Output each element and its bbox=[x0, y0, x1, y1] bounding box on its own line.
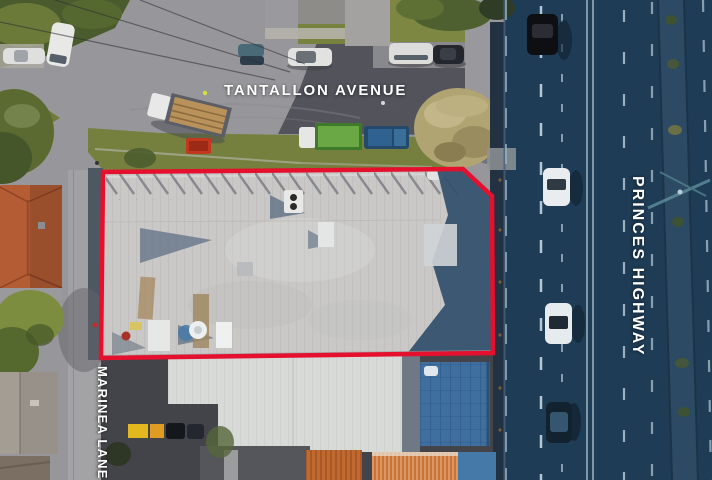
princes-highway bbox=[479, 0, 712, 480]
van-windows bbox=[394, 55, 428, 60]
orange-corrugated-roof bbox=[306, 450, 362, 480]
rust-patch bbox=[138, 277, 156, 320]
worker-hivis bbox=[203, 91, 207, 95]
car-shadow bbox=[556, 20, 572, 60]
gray-roof-house bbox=[0, 372, 58, 454]
shrub bbox=[206, 426, 234, 458]
yellow-item bbox=[130, 322, 142, 330]
dumpster-interior bbox=[189, 141, 208, 151]
white-van bbox=[389, 43, 433, 64]
street-label-marinea-lane: MARINEA LANE bbox=[95, 366, 110, 480]
white-panels-sunlit bbox=[424, 224, 457, 266]
rust-corrugated-roof bbox=[372, 452, 460, 480]
lower-buildings bbox=[101, 353, 496, 480]
median-bush bbox=[675, 358, 689, 368]
car-windows bbox=[14, 50, 28, 62]
rust-patch bbox=[193, 294, 209, 348]
green-flatbed-truck bbox=[299, 123, 362, 150]
blue-truck bbox=[364, 126, 409, 149]
blue-roof-small bbox=[458, 452, 496, 480]
bottom-house bbox=[0, 456, 50, 480]
fence-shadow-hatch bbox=[106, 170, 460, 200]
red-drum bbox=[122, 332, 131, 341]
white-panel bbox=[216, 322, 232, 348]
red-object bbox=[93, 323, 98, 328]
dark-car bbox=[166, 423, 185, 439]
orange-bin bbox=[150, 424, 164, 438]
utility-pole bbox=[95, 161, 99, 165]
car-roof bbox=[532, 24, 553, 38]
car-roof bbox=[440, 48, 456, 60]
car-shadow bbox=[569, 170, 583, 206]
driveway bbox=[345, 0, 392, 46]
footpath bbox=[265, 28, 345, 39]
terracotta-roof-house bbox=[0, 185, 62, 290]
car-roof bbox=[550, 412, 568, 432]
subject-property bbox=[101, 169, 493, 358]
median-bush bbox=[668, 125, 682, 135]
skylight bbox=[237, 262, 253, 276]
blue-roof-building bbox=[420, 362, 490, 446]
street-label-princes-highway: PRINCES HIGHWAY bbox=[628, 176, 646, 357]
roof-corner bbox=[298, 0, 345, 26]
yellow-skip bbox=[128, 424, 148, 438]
chimney bbox=[38, 222, 45, 229]
car-shadow bbox=[571, 305, 585, 343]
roof-vent bbox=[424, 366, 438, 376]
tree-highlight bbox=[4, 104, 40, 128]
roof-mottle bbox=[308, 300, 412, 340]
ac-unit bbox=[284, 190, 303, 213]
median-bush bbox=[672, 217, 684, 227]
median-bush bbox=[665, 15, 677, 25]
driveway-crossover bbox=[487, 148, 516, 170]
skylight bbox=[30, 400, 39, 406]
shrub bbox=[124, 148, 156, 168]
dish-center bbox=[194, 326, 202, 334]
white-panel bbox=[148, 320, 170, 351]
light-pole bbox=[381, 101, 385, 105]
car-windows bbox=[547, 179, 566, 190]
street-label-tantallon-avenue: TANTALLON AVENUE bbox=[224, 82, 407, 99]
tree-texture bbox=[26, 324, 54, 346]
median-bush bbox=[678, 407, 690, 417]
median-bush bbox=[667, 59, 679, 69]
roof-panel bbox=[318, 222, 334, 247]
car-sunroof bbox=[549, 316, 568, 329]
concrete-strip bbox=[402, 356, 420, 452]
aerial-photo: TANTALLON AVENUE PRINCES HIGHWAY MARINEA… bbox=[0, 0, 712, 480]
dark-car bbox=[187, 424, 204, 439]
